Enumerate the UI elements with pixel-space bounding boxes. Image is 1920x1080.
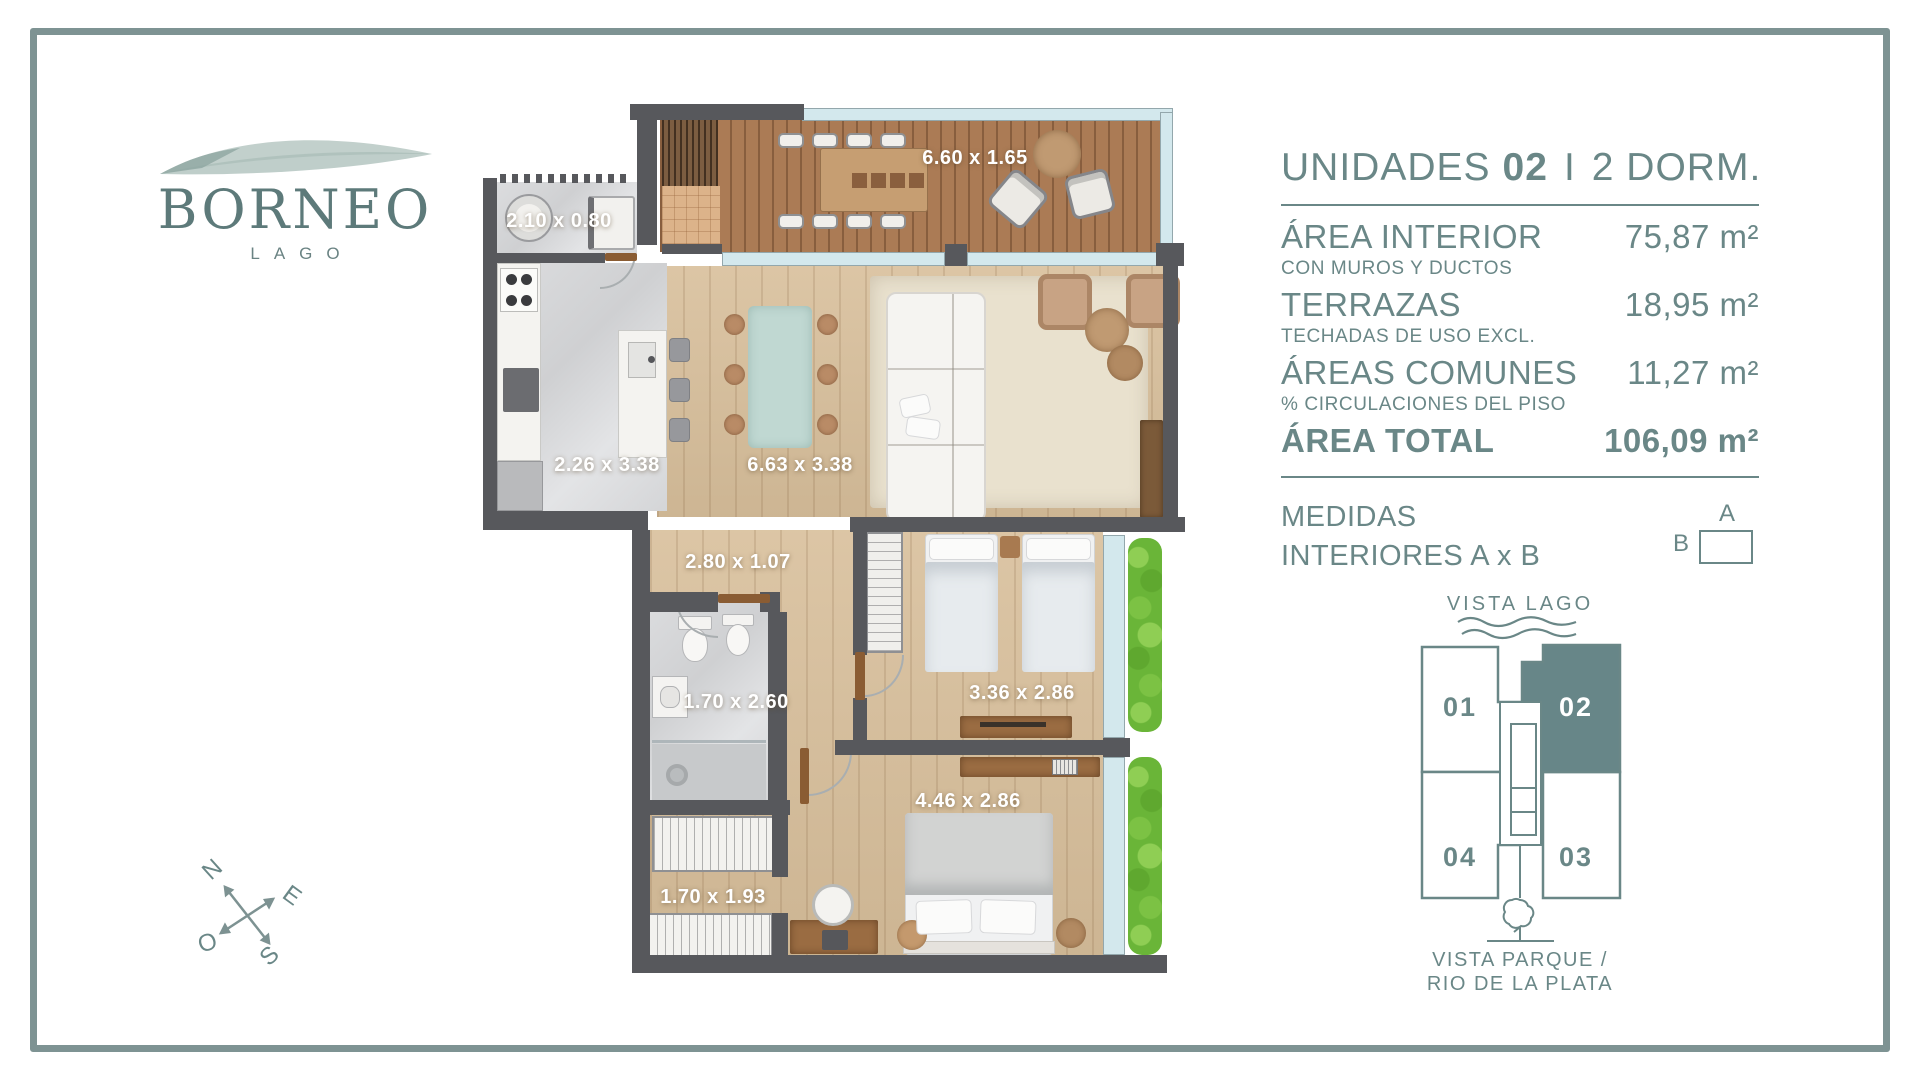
bedroom2-window <box>1103 535 1125 738</box>
door-leaf <box>855 652 865 700</box>
dim-living: 6.63 x 3.38 <box>725 454 875 477</box>
dining-table <box>748 306 812 448</box>
cooktop <box>500 268 538 312</box>
dim-terraza: 6.60 x 1.65 <box>900 147 1050 170</box>
bar-stool <box>669 338 690 362</box>
laundry-vent-window <box>500 174 630 183</box>
dim-dormitorio-principal: 4.46 x 2.86 <box>893 790 1043 813</box>
living-window-right <box>967 252 1158 266</box>
terrace-chair <box>778 214 804 229</box>
floor-plan: 6.60 x 1.65 2.10 x 0.80 2.26 x 3.38 6.63… <box>0 0 1920 1080</box>
table-tray <box>890 173 905 188</box>
wall <box>483 253 605 263</box>
armchair <box>1038 274 1092 330</box>
wall <box>772 815 788 877</box>
wall-pier <box>1103 738 1130 757</box>
nightstand-round <box>1056 918 1086 948</box>
main-bedroom-shelf <box>960 757 1100 777</box>
terrace-chair <box>812 133 838 148</box>
terrace-chair <box>812 214 838 229</box>
wall <box>632 800 790 815</box>
bedroom2-wardrobe <box>866 532 903 653</box>
dim-hall: 2.80 x 1.07 <box>663 551 813 574</box>
dim-dormitorio2: 3.36 x 2.86 <box>947 682 1097 705</box>
bed-pillow <box>979 899 1036 935</box>
terrace-chair <box>880 214 906 229</box>
brochure-page: BORNEO LAGO N E O S UNIDADES 02 I 2 DORM… <box>0 0 1920 1080</box>
oven <box>503 368 539 412</box>
table-tray <box>852 173 867 188</box>
wall <box>1163 263 1178 519</box>
wall <box>483 511 648 530</box>
wall <box>835 740 1130 755</box>
shower-head <box>666 764 688 786</box>
bar-stool <box>669 418 690 442</box>
planter-hedge <box>1128 757 1162 955</box>
bed-pillow <box>915 899 972 935</box>
table-tray <box>909 173 924 188</box>
dining-chair <box>724 314 745 335</box>
dining-chair <box>817 364 838 385</box>
bedroom2-desk <box>960 716 1072 738</box>
wall-pier <box>1156 243 1184 266</box>
terrace-chair <box>880 133 906 148</box>
terrace-chair <box>778 133 804 148</box>
dim-vestidor: 1.70 x 1.93 <box>638 886 788 909</box>
terrace-top-window <box>802 108 1173 121</box>
dim-lavadero: 2.10 x 0.80 <box>484 210 634 233</box>
wall <box>638 592 718 612</box>
terrace-chair <box>846 133 872 148</box>
wall-pier <box>945 244 967 266</box>
wall <box>632 955 1167 973</box>
wall <box>853 698 867 740</box>
door-leaf <box>605 253 637 261</box>
wall <box>630 104 804 120</box>
door-leaf <box>718 594 770 603</box>
living-window-left <box>722 252 945 266</box>
wall <box>637 120 657 245</box>
terrace-tile-floor <box>662 186 720 244</box>
dressing-wardrobe <box>647 913 773 957</box>
bed-frame <box>903 941 1055 954</box>
dining-chair <box>724 364 745 385</box>
terrace-pergola <box>662 120 718 186</box>
dim-bano: 1.70 x 2.60 <box>661 691 811 714</box>
nightstand <box>1000 536 1020 558</box>
tv-cabinet <box>1140 420 1163 518</box>
faucet <box>648 356 655 363</box>
tv <box>980 722 1046 727</box>
dining-chair <box>724 414 745 435</box>
wall <box>662 244 722 254</box>
bar-stool <box>669 378 690 402</box>
laptop <box>822 930 848 950</box>
wall <box>850 517 1185 532</box>
terrace-chair <box>846 214 872 229</box>
table-tray <box>871 173 886 188</box>
bed-pillow <box>929 538 994 560</box>
planter-hedge <box>1128 538 1162 732</box>
shelf-decor <box>1052 759 1078 775</box>
wall <box>853 530 867 655</box>
bidet-bowl <box>726 624 750 656</box>
main-bed-duvet <box>905 813 1053 895</box>
shower-glass-line <box>652 740 766 743</box>
desk-chair <box>812 884 854 926</box>
dining-chair <box>817 414 838 435</box>
coffee-table <box>1107 345 1143 381</box>
bed-pillow <box>1026 538 1091 560</box>
dining-chair <box>817 314 838 335</box>
main-bedroom-window <box>1103 757 1125 955</box>
dressing-wardrobe <box>652 816 774 872</box>
bed-duvet <box>925 562 998 672</box>
bed-duvet <box>1022 562 1095 672</box>
door-leaf <box>800 748 809 804</box>
dim-cocina: 2.26 x 3.38 <box>532 454 682 477</box>
terrace-right-window <box>1160 112 1173 248</box>
